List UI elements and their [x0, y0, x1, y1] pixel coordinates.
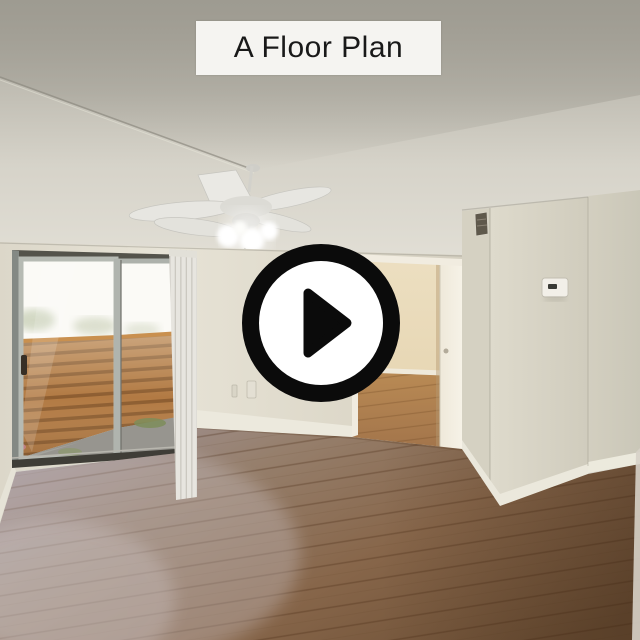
balcony-view	[15, 258, 190, 465]
door-handle	[21, 355, 27, 375]
door-knob	[444, 349, 449, 354]
foliage	[73, 317, 117, 335]
power-outlet	[232, 385, 237, 397]
grass	[134, 418, 166, 428]
door-shadow	[436, 262, 440, 448]
video-thumbnail: A Floor Plan	[0, 0, 640, 640]
title-banner: A Floor Plan	[196, 21, 441, 75]
far-right-wall	[588, 190, 640, 466]
thermostat-display	[548, 284, 557, 289]
sliding-glass-door	[12, 250, 190, 468]
wall-vent	[475, 212, 488, 236]
right-wall	[462, 190, 640, 507]
play-icon	[241, 243, 401, 403]
play-button[interactable]	[241, 243, 401, 403]
open-door	[440, 260, 462, 452]
video-title: A Floor Plan	[234, 31, 403, 65]
thermostat	[542, 278, 568, 302]
